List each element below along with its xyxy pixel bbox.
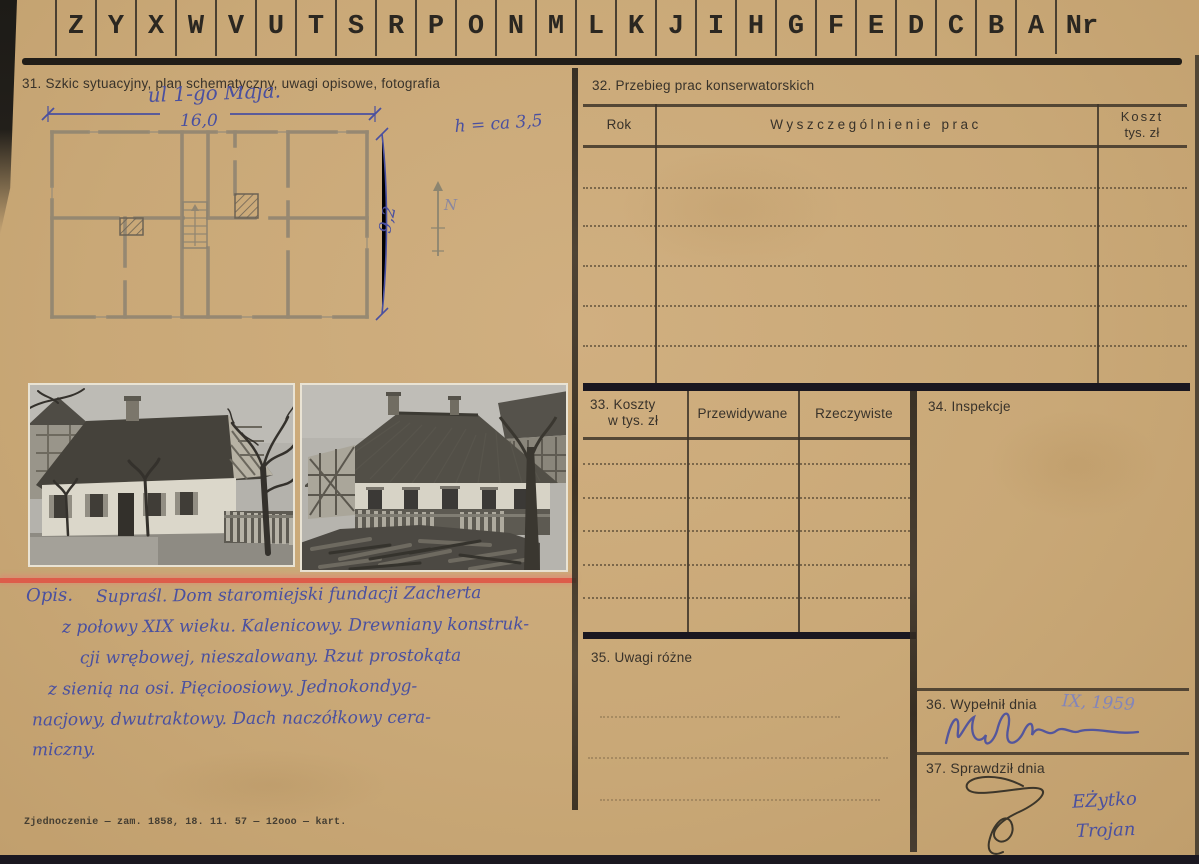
section37-name-1: EŻytko	[1071, 788, 1137, 812]
index-letter-cell: K	[615, 0, 655, 56]
table33-row-line	[583, 463, 910, 465]
fence	[224, 511, 295, 545]
section35-faint-line	[600, 716, 840, 718]
plan-street-label: ul 1-go Maja.	[147, 86, 281, 107]
opis-line: Supraśl. Dom staromiejski fundacji Zache…	[96, 583, 482, 607]
signature-sprawdzil	[945, 768, 1095, 860]
index-letter-cell: R	[375, 0, 415, 56]
index-letter-cell: C	[935, 0, 975, 56]
index-letter-cell: J	[655, 0, 695, 56]
index-letter-strip: ZYXWVUTSRPONMLKJIHGFEDCBA	[55, 0, 1055, 56]
index-letter-cell: T	[295, 0, 335, 56]
index-letter-cell: F	[815, 0, 855, 56]
divider-right-column	[910, 391, 917, 852]
index-letter-cell: B	[975, 0, 1015, 56]
table32-col-koszt-line2: tys. zł	[1097, 125, 1187, 140]
section33-title-line1: 33. Koszty	[590, 397, 656, 412]
table32-row-line	[583, 305, 1187, 307]
section35-title: 35. Uwagi różne	[591, 650, 692, 665]
conservation-record-card: ZYXWVUTSRPONMLKJIHGFEDCBA Nr 31. Szkic s…	[0, 0, 1199, 864]
index-letter-cell: I	[695, 0, 735, 56]
north-label: N	[443, 196, 458, 214]
opis-line: nacjowy, dwutraktowy. Dach naczółkowy ce…	[32, 708, 431, 731]
table33-col-rzeczywiste: Rzeczywiste	[798, 406, 910, 421]
index-letter-cell: Z	[55, 0, 95, 56]
table32-bottom-rule	[583, 383, 1190, 391]
paper-stain	[150, 750, 390, 820]
scan-edge-right	[1195, 55, 1199, 855]
table33-row-line	[583, 530, 910, 532]
table32-col-rule	[655, 104, 657, 384]
index-strip-rule	[22, 58, 1182, 65]
index-letter-cell: G	[775, 0, 815, 56]
house-door	[118, 493, 134, 536]
table33-col-rule	[687, 391, 689, 632]
table33-row-line	[583, 497, 910, 499]
index-letter-cell: W	[175, 0, 215, 56]
opis-line: z połowy XIX wieku. Kalenicowy. Drewnian…	[62, 614, 529, 637]
section37-name-2: Trojan	[1076, 819, 1136, 842]
plan-staircase	[183, 202, 207, 248]
plan-stove-hatch	[120, 218, 143, 235]
paper-stain	[990, 410, 1160, 520]
table32-row-line	[583, 225, 1187, 227]
index-nr-cell: Nr	[1055, 0, 1107, 54]
index-letter-cell: P	[415, 0, 455, 56]
signature-wypelnil	[938, 705, 1148, 751]
index-letter-cell: V	[215, 0, 255, 56]
opis-label: Opis.	[26, 585, 73, 607]
photo-courtyard-view	[300, 383, 568, 572]
opis-line: z sienią na osi. Pięcioosiowy. Jednokond…	[48, 676, 417, 699]
section33-title-line2: w tys. zł	[608, 413, 658, 428]
north-arrow	[431, 181, 445, 256]
index-letter-cell: H	[735, 0, 775, 56]
plan-stove-hatch	[235, 194, 258, 218]
index-letter-cell: D	[895, 0, 935, 56]
table32-col-prace: Wyszczególnienie prac	[655, 117, 1097, 132]
index-letter-cell: E	[855, 0, 895, 56]
floor-plan-sketch: 16,0 ul 1-go Maja. 9,2 h = ca 3,5 N	[30, 86, 560, 336]
table32-row-line	[583, 345, 1187, 347]
opis-line: miczny.	[32, 740, 96, 761]
table33-header-rule	[583, 437, 910, 440]
scan-edge-left	[0, 0, 17, 235]
print-footer: Zjednoczenie — zam. 1858, 18. 11. 57 — 1…	[24, 817, 346, 828]
table33-bottom-rule	[583, 632, 916, 639]
table32-row-line	[583, 187, 1187, 189]
index-letter-cell: X	[135, 0, 175, 56]
index-letter-cell: Y	[95, 0, 135, 56]
table32-col-rule	[1097, 104, 1099, 384]
table33-row-line	[583, 597, 910, 599]
plan-walls	[52, 132, 367, 317]
divider-center	[572, 68, 578, 810]
index-letter-cell: S	[335, 0, 375, 56]
section36-top-rule	[917, 688, 1189, 691]
table32-col-rok: Rok	[583, 117, 655, 132]
table33-row-line	[583, 564, 910, 566]
photo-street-view	[28, 383, 295, 567]
opis-line: cji wrębowej, nieszalowany. Rzut prostok…	[80, 646, 461, 669]
section32-title: 32. Przebieg prac konserwatorskich	[592, 78, 814, 93]
table33-col-rule	[798, 391, 800, 632]
table33-col-przewidywane: Przewidywane	[687, 406, 798, 421]
table32-row-line	[583, 265, 1187, 267]
plan-height-note: h = ca 3,5	[454, 111, 543, 137]
paper-stain	[620, 150, 840, 270]
plan-dim-width-label: 16,0	[180, 111, 218, 131]
index-letter-cell: U	[255, 0, 295, 56]
section36-bottom-rule	[917, 752, 1189, 755]
index-letter-cell: M	[535, 0, 575, 56]
section35-faint-line	[588, 757, 888, 759]
index-letter-cell: A	[1015, 0, 1055, 56]
index-letter-cell: N	[495, 0, 535, 56]
red-marker-line	[0, 578, 576, 583]
index-letter-cell: L	[575, 0, 615, 56]
table32-col-koszt-line1: Koszt	[1097, 109, 1187, 124]
plan-dim-depth-label: 9,2	[375, 204, 400, 235]
index-letter-cell: O	[455, 0, 495, 56]
section35-faint-line	[600, 799, 880, 801]
section34-title: 34. Inspekcje	[928, 399, 1011, 414]
